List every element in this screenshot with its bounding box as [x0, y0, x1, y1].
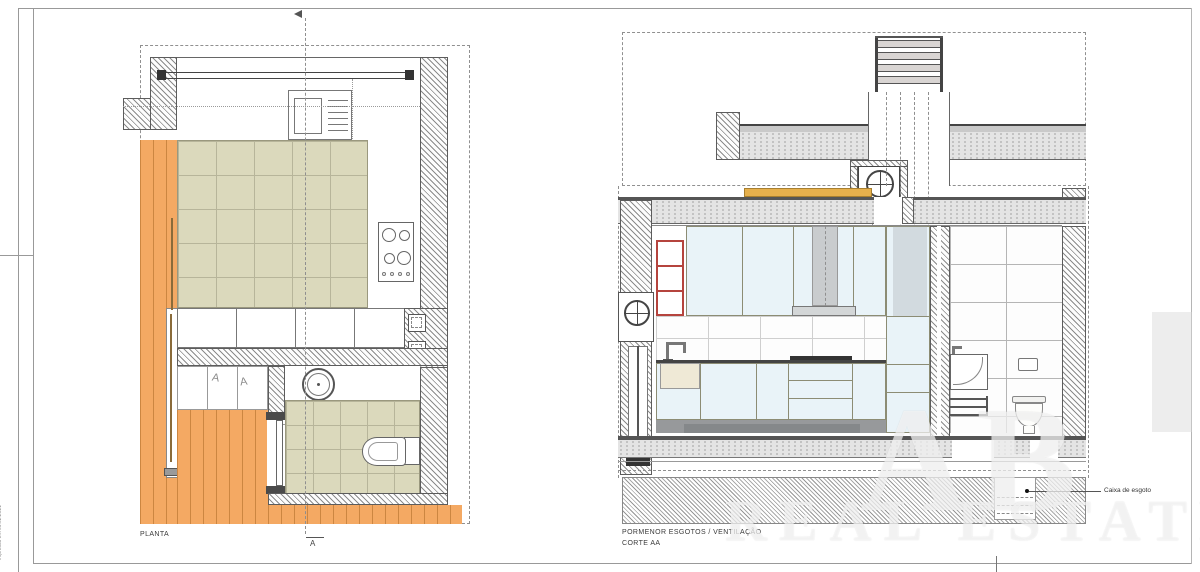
watermark-fragment	[1152, 312, 1192, 432]
base-cabinet-divider	[852, 363, 853, 420]
toilet-bowl-plan-inner	[368, 442, 398, 461]
cooktop-knob-1	[382, 272, 386, 276]
chimney-louver	[878, 40, 940, 48]
chimney-post-right	[940, 36, 943, 92]
plan-cabinet-divider	[236, 308, 237, 348]
red-shelf-line	[656, 265, 684, 267]
plan-window-cap-left	[157, 70, 166, 80]
sliding-door-leaf-lower	[170, 314, 172, 462]
cooktop-section-strip	[790, 356, 852, 360]
plot-stamp: impresso em 06.02.2021	[0, 500, 3, 560]
kitchen-tile-floor	[177, 140, 368, 308]
wall-fan-cross-h	[624, 313, 650, 314]
frame-left-outer-line	[18, 8, 19, 572]
plan-window-line-inner	[157, 78, 414, 79]
base-cabinet-divider	[756, 363, 757, 420]
chimney-louver	[878, 76, 940, 84]
flush-plate	[1018, 358, 1038, 371]
plan-window-cap-right	[405, 70, 414, 80]
fold-mark-bottom	[996, 556, 997, 572]
cooktop-burner-1	[382, 228, 396, 242]
drawing-sheet: impresso em 06.02.2021 A A	[0, 0, 1200, 572]
plan-wall-top-left-foot	[123, 98, 151, 130]
toilet-tank-plan	[404, 437, 420, 465]
door-jamb-top	[266, 412, 287, 420]
plan-wall-top-left	[150, 57, 177, 130]
roof-upturn	[716, 112, 740, 160]
drawer-line	[788, 398, 852, 399]
plan-window-line-outer	[157, 72, 414, 73]
section-cut-tick-bottom	[306, 537, 324, 538]
wood-blocking-strip	[744, 188, 872, 197]
fan-cross-h	[866, 184, 894, 185]
cooktop-burner-3	[384, 253, 395, 264]
drawer-line	[788, 380, 852, 381]
plan-guide-dotted-h	[123, 106, 420, 107]
cooktop-knob-3	[398, 272, 402, 276]
plan-sink-bowl	[294, 98, 322, 134]
kitchen-sink-basin	[660, 363, 700, 389]
ceiling-right-end-block	[1062, 188, 1086, 198]
plan-partition-wall	[177, 348, 448, 366]
chimney-cap	[875, 36, 943, 38]
fold-mark-left	[0, 255, 33, 256]
range-hood-canopy	[792, 306, 856, 316]
plan-wall-right	[420, 57, 448, 510]
plan-top-wall-line	[150, 57, 448, 58]
chimney-louver	[878, 64, 940, 72]
bathroom-bottom-wall	[268, 493, 448, 505]
section-dashed-right	[1088, 186, 1089, 478]
red-shelf-unit	[656, 240, 684, 316]
base-cabinet-divider	[700, 363, 701, 420]
watermark-text: REAL ESTATE	[725, 492, 1200, 550]
upper-cabinet-divider	[742, 226, 743, 316]
plan-cabinet-divider	[295, 308, 296, 348]
section-window-sill	[626, 458, 650, 466]
frame-bottom-line	[33, 563, 1192, 564]
hood-duct-dashed	[825, 226, 826, 306]
frame-top-line	[18, 8, 1192, 9]
wardrobe-divider	[237, 366, 238, 410]
frame-right-line	[1191, 8, 1192, 564]
section-cut-arrow-icon	[294, 10, 302, 18]
plan-cabinet-divider	[354, 308, 355, 348]
cooktop-burner-2	[399, 230, 410, 241]
ceiling-slab	[618, 200, 1086, 224]
upper-cabinets	[686, 226, 886, 316]
plinth-inner	[684, 424, 860, 433]
tall-unit-divider	[886, 364, 930, 365]
frame-left-inner-line	[33, 8, 34, 564]
ceiling-gap-hatch-block	[902, 197, 914, 224]
deck-band-bottom	[177, 505, 462, 524]
section-cut-line	[305, 18, 306, 534]
sliding-door-leaf-upper	[171, 218, 173, 310]
splashback-tiles	[656, 316, 886, 360]
upper-cabinet-divider	[853, 226, 854, 316]
hanger-symbol: A	[239, 376, 248, 389]
kitchen-faucet-spout	[683, 345, 686, 353]
wardrobe-divider	[207, 366, 208, 410]
ceiling-duct-gap	[874, 197, 902, 224]
upper-cabinet-divider	[793, 226, 794, 316]
vent-duct-box-1-inner	[411, 317, 422, 328]
section-title-line2: CORTE AA	[622, 540, 660, 547]
chimney-louver	[878, 52, 940, 60]
tall-unit-divider	[886, 316, 930, 317]
section-marker-letter: A	[310, 539, 315, 548]
cooktop-burner-4	[397, 251, 411, 265]
door-leaf	[276, 420, 283, 486]
duct-shadow	[893, 226, 927, 316]
washbasin-drain	[317, 383, 320, 386]
duct-dashed-line	[886, 92, 887, 186]
plan-title: PLANTA	[140, 531, 169, 538]
cooktop-knob-2	[390, 272, 394, 276]
wardrobe	[177, 366, 268, 410]
cooktop-knob-4	[406, 272, 410, 276]
red-shelf-line	[656, 290, 684, 292]
base-cabinet-divider	[788, 363, 789, 420]
